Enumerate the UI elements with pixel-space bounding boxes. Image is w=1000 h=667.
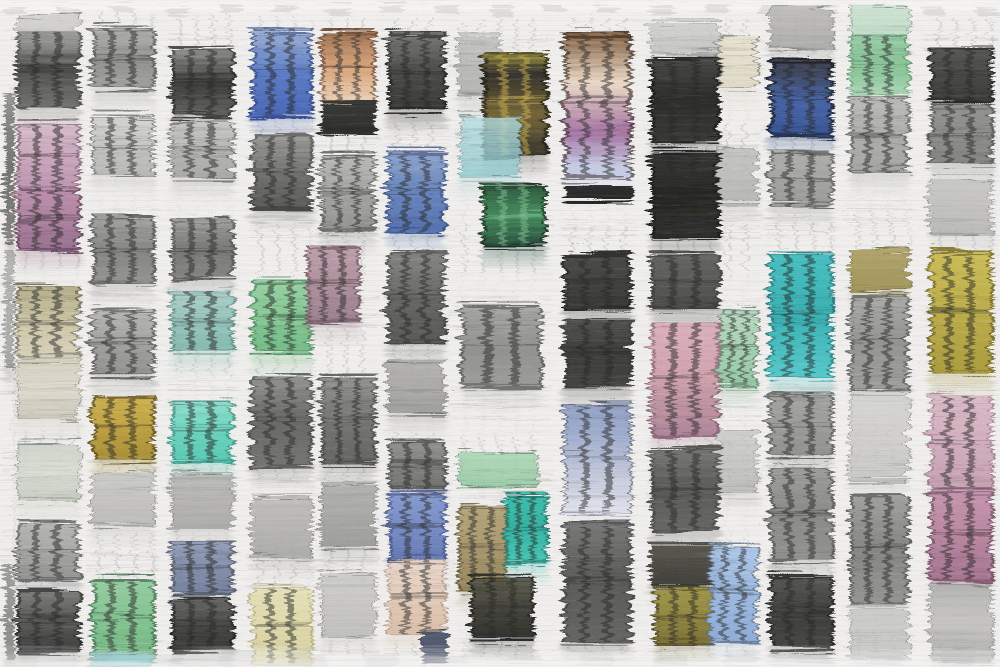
artwork-canvas — [0, 0, 1000, 667]
water-streak-overlay — [0, 0, 1000, 667]
